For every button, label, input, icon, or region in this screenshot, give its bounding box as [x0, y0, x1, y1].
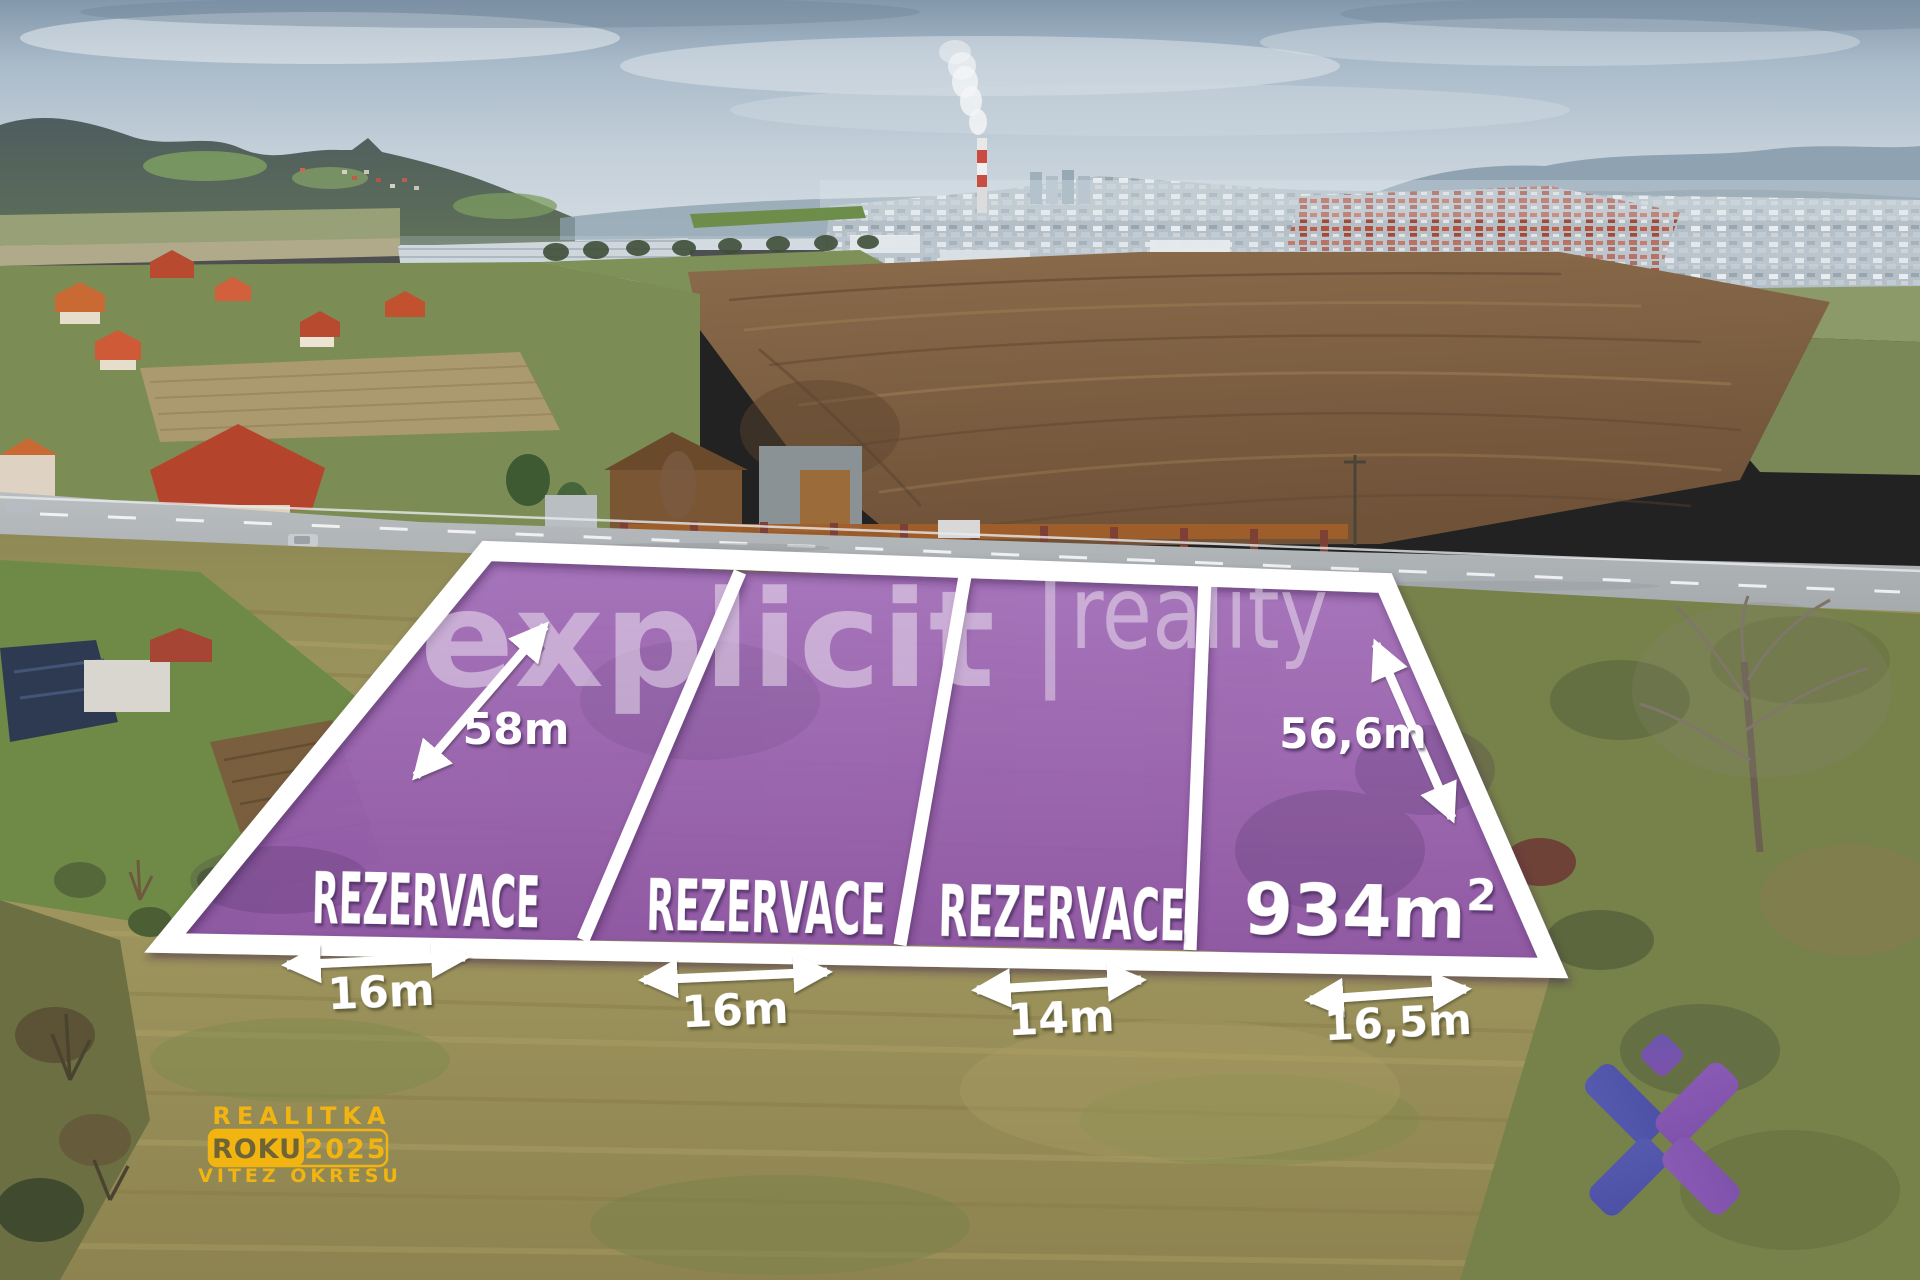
plot-4-width-label: 16,5m [1323, 995, 1472, 1050]
plot-2-status: REZERVACE [646, 864, 887, 952]
plot-3-width-label: 14m [1006, 991, 1115, 1047]
plot-3-status: REZERVACE [938, 869, 1187, 957]
watermark-divider: | [1030, 562, 1070, 701]
aerial-listing-photo: explicit | reality REZERVACE REZERVACE R… [0, 0, 1920, 1280]
plot-2-width-label: 16m [680, 983, 789, 1039]
award-badge-line2: VÍTĚZ OKRESU [198, 1164, 402, 1187]
car [288, 534, 318, 547]
watermark-secondary: reality [1070, 554, 1328, 673]
watermark-primary: explicit [420, 562, 995, 718]
award-badge-box-word: ROKU [212, 1134, 302, 1165]
award-badge-year: 2025 [304, 1134, 387, 1165]
plot-4-area-label: 934m2 [1243, 865, 1498, 955]
plot-1-status: REZERVACE [311, 857, 541, 945]
plot-4-depth-label: 56,6m [1279, 709, 1426, 758]
award-badge: REALITKA ROKU 2025 VÍTĚZ OKRESU [198, 1102, 402, 1187]
car-2 [6, 500, 32, 512]
award-badge-line1: REALITKA [212, 1102, 391, 1130]
plot-1-depth-label: 58m [462, 704, 569, 755]
plot-1-width-label: 16m [326, 965, 435, 1021]
